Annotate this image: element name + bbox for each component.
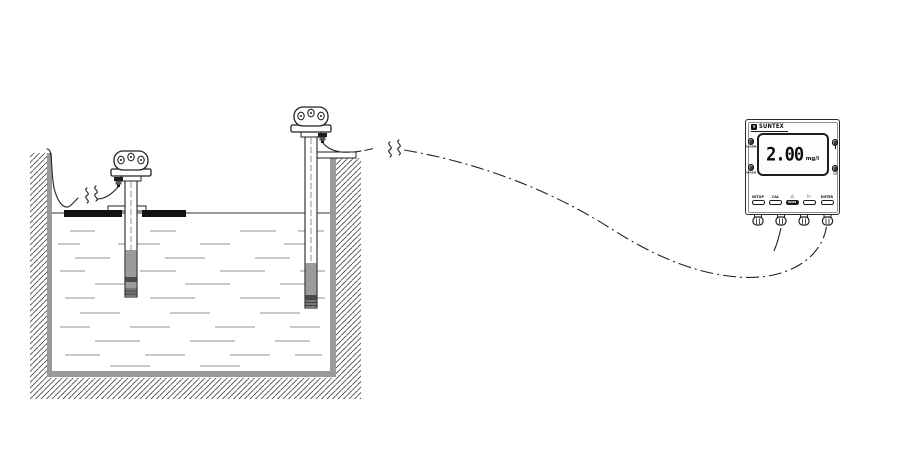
lo-indicator: LO [828, 165, 842, 176]
mounting-bracket [317, 152, 356, 158]
installation-diagram: S SUNTEX 2.00 mg/l ALARM WASH LO SETUP [0, 0, 899, 465]
alarm-led-icon [748, 138, 755, 145]
enter-button: ENTER [819, 193, 835, 205]
suntex-logo-icon: S [751, 124, 757, 130]
cable-gland [776, 214, 786, 225]
lcd-display: 2.00 mg/l [757, 133, 829, 176]
tank-left-wall [30, 153, 47, 378]
mode-key: MODE [786, 200, 799, 205]
panel-screw-top-right [828, 139, 842, 149]
up-triangle-icon: △ [790, 193, 795, 199]
right-triangle-icon: ▷ [807, 193, 812, 199]
probe-1-cable-segment-a [97, 187, 118, 199]
tank-bottom [30, 378, 361, 399]
meter-power-cable [774, 228, 781, 251]
mode-up-button: △ MODE [785, 193, 801, 205]
button-row: SETUP CAL △ MODE ▷ ENTER [750, 193, 835, 205]
probe-1 [47, 149, 186, 297]
cal-button: CAL [767, 193, 783, 205]
enter-key [821, 200, 834, 205]
setup-button: SETUP [750, 193, 766, 205]
cable-break-icon [389, 140, 401, 157]
tank-bottom-lining [47, 371, 336, 377]
measurement-value: 2.00 [766, 144, 803, 166]
water-dashes [58, 231, 325, 366]
cable-gland [753, 214, 763, 225]
right-key [803, 200, 816, 205]
probe-2-connector [318, 133, 327, 143]
screw-stem [835, 146, 836, 150]
cable-break-icon [86, 186, 98, 203]
probe-2-cable-segment-a [323, 143, 341, 152]
probe-1-connector [114, 177, 123, 187]
measurement-unit: mg/l [806, 155, 819, 161]
lo-led-icon [832, 165, 839, 172]
tank-left-lining [47, 153, 52, 377]
wash-indicator: WASH [744, 164, 758, 175]
tank-right-wall [336, 158, 361, 378]
float-bar-right [142, 210, 186, 217]
tank-and-probes-drawing [0, 0, 899, 465]
cal-key [769, 200, 782, 205]
cable-gland [823, 214, 833, 225]
probe-1-sensor [126, 250, 137, 297]
brand-name: SUNTEX [759, 123, 784, 130]
do-controller-panel: S SUNTEX 2.00 mg/l ALARM WASH LO SETUP [745, 119, 840, 215]
cable-glands [753, 214, 833, 225]
wash-led-icon [748, 164, 755, 171]
setup-key [752, 200, 765, 205]
float-bar-left [64, 210, 122, 217]
probe-2-sensor [306, 263, 317, 308]
brand-logo: S SUNTEX [751, 123, 788, 132]
tank-right-lining [330, 158, 336, 377]
cable-gland [799, 214, 809, 225]
alarm-indicator: ALARM [744, 138, 758, 149]
